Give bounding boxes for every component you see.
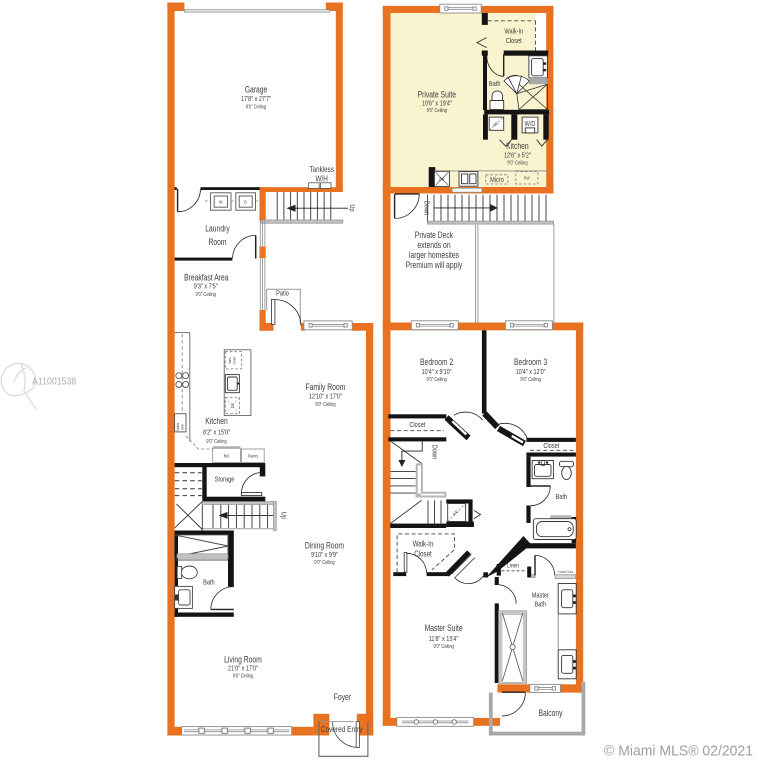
svg-text:Laundry: Laundry: [205, 224, 230, 234]
svg-text:Closet: Closet: [506, 36, 522, 45]
svg-text:Closet: Closet: [409, 420, 425, 429]
svg-text:9'0" Ceiling: 9'0" Ceiling: [314, 560, 334, 566]
svg-text:DW: DW: [231, 403, 235, 408]
svg-text:A11001538: A11001538: [32, 377, 76, 388]
svg-text:9'0" Ceiling: 9'0" Ceiling: [507, 161, 527, 167]
svg-text:Bath: Bath: [203, 578, 215, 587]
svg-text:Linen: Linen: [507, 563, 519, 570]
svg-text:Bath: Bath: [535, 600, 547, 609]
svg-text:10'4" x 12'0": 10'4" x 12'0": [516, 368, 546, 376]
svg-text:Foyer: Foyer: [334, 692, 351, 702]
svg-text:9'0" Ceiling: 9'0" Ceiling: [206, 439, 226, 445]
svg-text:9'0" Ceiling: 9'0" Ceiling: [427, 108, 447, 114]
svg-text:Ref: Ref: [224, 454, 230, 459]
svg-text:© Miami MLS® 02/2021: © Miami MLS® 02/2021: [604, 744, 753, 760]
svg-text:Room: Room: [208, 237, 226, 247]
svg-text:Premium will apply: Premium will apply: [406, 260, 463, 270]
svg-text:Storage: Storage: [215, 474, 235, 483]
svg-text:Dining Room: Dining Room: [305, 541, 344, 551]
svg-text:Walk-In: Walk-In: [413, 540, 434, 549]
svg-text:Wine: Wine: [228, 357, 232, 363]
svg-text:Private Suite: Private Suite: [418, 90, 456, 100]
svg-text:9'0" Ceiling: 9'0" Ceiling: [315, 402, 335, 408]
svg-text:Up: Up: [280, 512, 289, 519]
svg-text:9'0" Ceiling: 9'0" Ceiling: [246, 104, 266, 110]
svg-text:Tankless: Tankless: [309, 165, 334, 174]
svg-text:Master Suite: Master Suite: [425, 623, 463, 633]
svg-text:Living Room: Living Room: [224, 654, 262, 664]
svg-text:W/D: W/D: [525, 119, 536, 128]
svg-text:Covered Entry: Covered Entry: [321, 724, 363, 734]
svg-text:extends on: extends on: [417, 240, 450, 250]
svg-text:Patio: Patio: [276, 288, 289, 297]
svg-text:9'0" Ceiling: 9'0" Ceiling: [426, 377, 446, 383]
svg-text:12'10" x 17'0": 12'10" x 17'0": [309, 393, 342, 401]
svg-text:Walk-In: Walk-In: [504, 27, 523, 36]
svg-text:Bar: Bar: [439, 177, 444, 182]
svg-text:Bath: Bath: [556, 492, 568, 501]
svg-text:9'0" Ceiling: 9'0" Ceiling: [196, 292, 216, 298]
svg-text:Bedroom 2: Bedroom 2: [420, 357, 453, 367]
svg-text:Pantry: Pantry: [248, 454, 259, 459]
svg-text:17'8" x 27'7": 17'8" x 27'7": [241, 95, 271, 103]
svg-text:9'0" Ceiling: 9'0" Ceiling: [520, 377, 540, 383]
svg-text:Kitchen: Kitchen: [506, 141, 529, 151]
svg-text:12'6" x 5'2": 12'6" x 5'2": [504, 152, 531, 160]
svg-text:Breakfast Area: Breakfast Area: [184, 272, 228, 282]
svg-text:Bedroom 3: Bedroom 3: [514, 357, 547, 367]
svg-text:Cooler: Cooler: [233, 356, 237, 364]
svg-text:Garage: Garage: [245, 84, 268, 94]
svg-text:8'2" x 15'0": 8'2" x 15'0": [203, 429, 230, 437]
svg-text:D: D: [244, 199, 247, 205]
svg-text:10'6" x 19'4": 10'6" x 19'4": [422, 99, 452, 107]
svg-text:Oven: Oven: [180, 424, 184, 430]
svg-text:Family Room: Family Room: [305, 382, 345, 392]
svg-text:9'0" Ceiling: 9'0" Ceiling: [233, 674, 253, 680]
svg-text:Down: Down: [423, 201, 432, 215]
svg-text:Master: Master: [532, 591, 550, 600]
svg-text:W: W: [219, 199, 223, 205]
svg-text:11'8" x 15'4": 11'8" x 15'4": [429, 635, 459, 643]
svg-text:Micro: Micro: [490, 175, 504, 184]
svg-text:Frosted Glass: Frosted Glass: [558, 570, 574, 574]
svg-text:Kitchen: Kitchen: [205, 416, 228, 426]
svg-text:Down: Down: [431, 445, 440, 459]
svg-text:Bath: Bath: [489, 79, 501, 88]
svg-text:Ref: Ref: [524, 176, 530, 181]
svg-text:Closet: Closet: [414, 550, 432, 559]
svg-text:Private Deck: Private Deck: [415, 230, 454, 240]
svg-text:Balcony: Balcony: [538, 708, 563, 718]
svg-text:9'0" Ceiling: 9'0" Ceiling: [433, 644, 453, 650]
svg-text:9'3" x 7'5": 9'3" x 7'5": [194, 283, 218, 291]
svg-text:W/H: W/H: [316, 175, 328, 184]
svg-text:21'0" x 17'0": 21'0" x 17'0": [228, 665, 258, 673]
svg-text:9'10" x 9'9": 9'10" x 9'9": [311, 551, 338, 559]
svg-text:larger homesites: larger homesites: [409, 250, 460, 260]
svg-text:10'4" x 9'10": 10'4" x 9'10": [422, 368, 452, 376]
svg-text:Closet: Closet: [543, 441, 559, 450]
svg-text:Up: Up: [348, 204, 357, 211]
